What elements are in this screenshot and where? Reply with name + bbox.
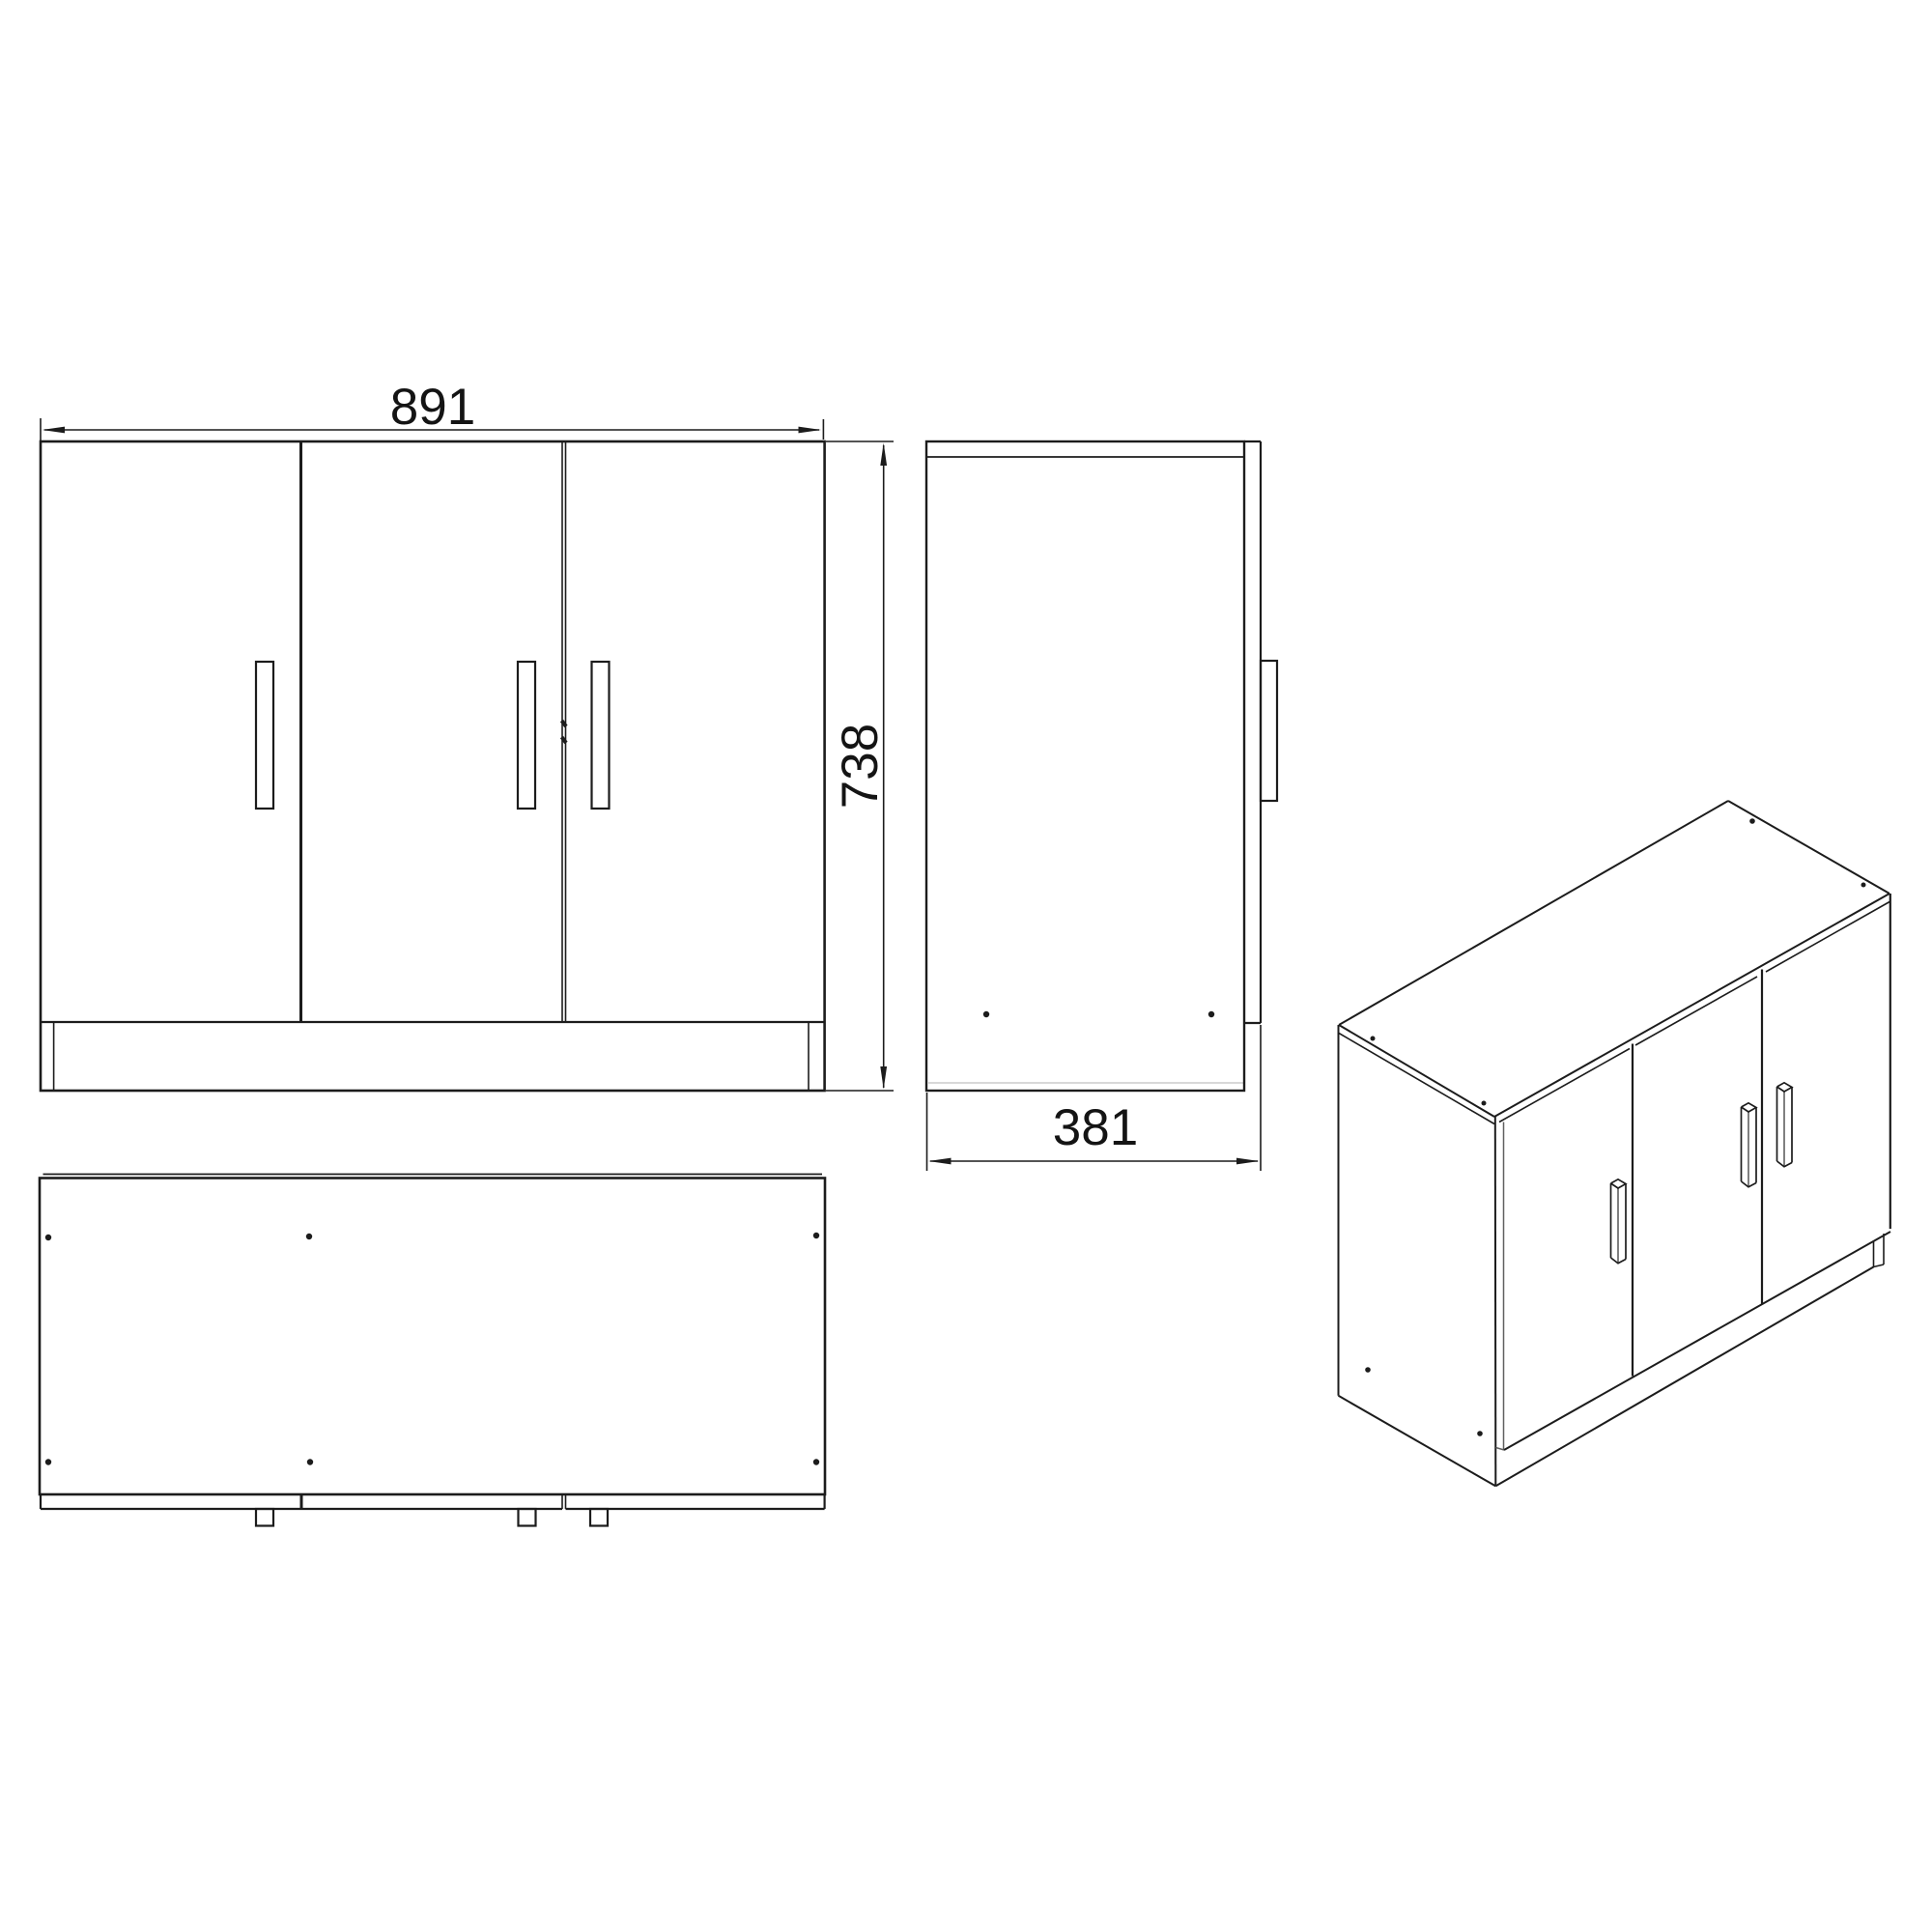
svg-text:738: 738 [832, 724, 889, 809]
svg-text:891: 891 [390, 379, 475, 436]
svg-text:381: 381 [1053, 1099, 1138, 1156]
